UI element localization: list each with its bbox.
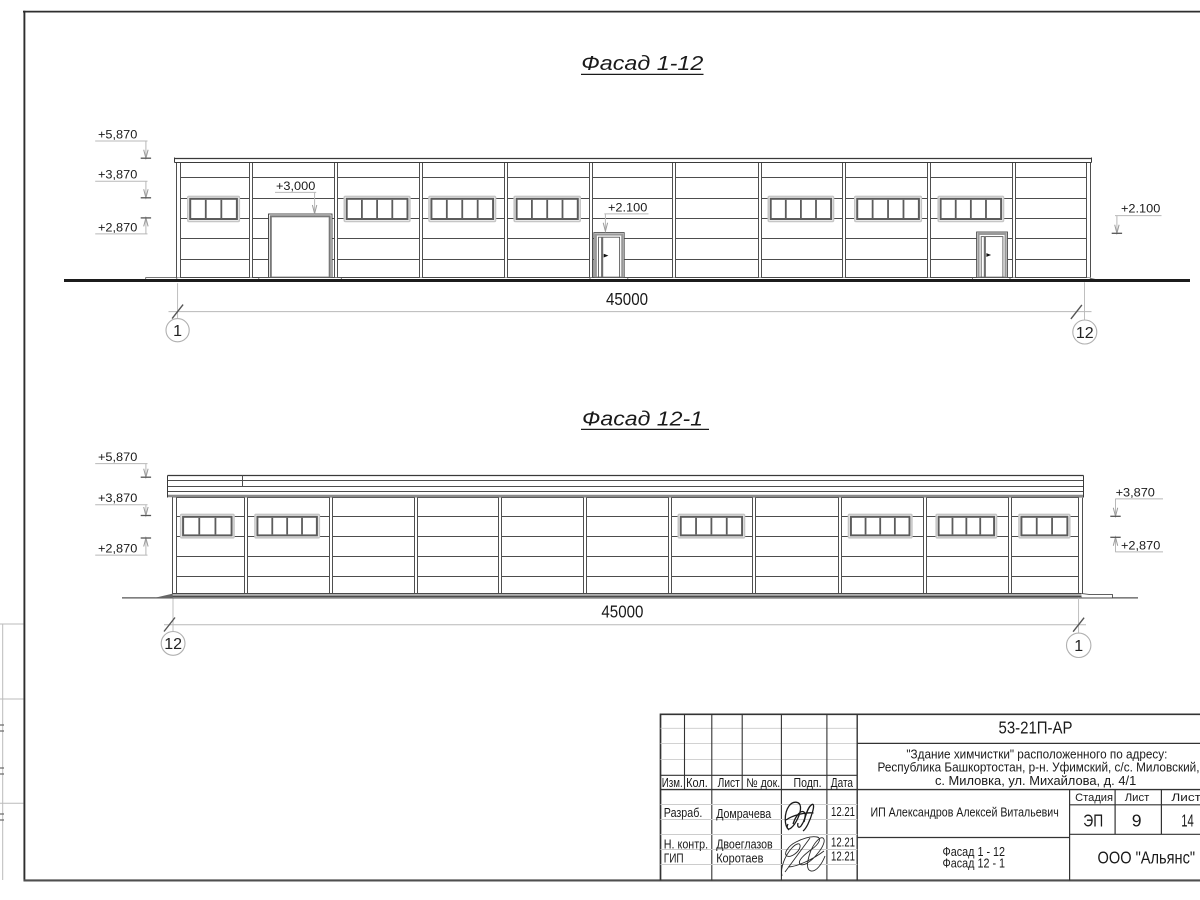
svg-text:№ док.: № док. (746, 776, 780, 790)
svg-text:ГИП: ГИП (664, 850, 684, 865)
svg-text:Стадия: Стадия (1075, 792, 1113, 804)
svg-text:9: 9 (1132, 811, 1142, 831)
svg-text:12.21: 12.21 (831, 848, 855, 863)
svg-text:+3,870: +3,870 (98, 491, 137, 505)
svg-text:12.21: 12.21 (831, 804, 855, 819)
svg-text:45000: 45000 (601, 602, 643, 622)
svg-text:+5,870: +5,870 (98, 450, 137, 464)
svg-text:Лист: Лист (1125, 792, 1150, 804)
svg-text:Листов: Листов (1171, 792, 1200, 804)
svg-text:ООО "Альянс": ООО "Альянс" (1098, 848, 1196, 868)
svg-text:Фасад 1-12: Фасад 1-12 (581, 52, 704, 75)
svg-text:12: 12 (164, 636, 182, 653)
svg-text:Подп.: Подп. (794, 776, 822, 790)
svg-text:45000: 45000 (606, 289, 648, 309)
svg-text:Дата: Дата (831, 776, 853, 790)
svg-text:+3,870: +3,870 (98, 168, 137, 182)
svg-text:ЭП: ЭП (1083, 811, 1103, 831)
svg-text:+2.100: +2.100 (1121, 202, 1160, 216)
svg-text:1: 1 (1074, 638, 1083, 655)
svg-text:Лист: Лист (718, 776, 740, 790)
svg-text:Домрачева: Домрачева (716, 806, 772, 821)
svg-text:Коротаев: Коротаев (716, 850, 763, 865)
svg-text:Двоеглазов: Двоеглазов (716, 837, 773, 852)
svg-text:12.21: 12.21 (831, 834, 855, 849)
svg-text:+3,000: +3,000 (276, 179, 315, 193)
svg-text:с. Миловка, ул. Михайлова, д.: с. Миловка, ул. Михайлова, д. 4/1 (935, 773, 1136, 788)
svg-text:+5,870: +5,870 (98, 128, 137, 142)
svg-text:+2,870: +2,870 (98, 220, 137, 234)
svg-text:Изм.: Изм. (662, 776, 683, 790)
svg-text:Фасад 12-1: Фасад 12-1 (582, 408, 703, 431)
svg-text:1: 1 (173, 323, 182, 340)
svg-text:+2,870: +2,870 (1121, 539, 1160, 553)
svg-text:14: 14 (1181, 811, 1194, 831)
svg-text:Фасад 12 - 1: Фасад 12 - 1 (943, 855, 1006, 870)
svg-text:Разраб.: Разраб. (664, 805, 703, 820)
svg-text:+2,870: +2,870 (98, 542, 137, 556)
svg-text:53-21П-АР: 53-21П-АР (999, 718, 1073, 738)
svg-text:Кол.: Кол. (686, 776, 708, 790)
svg-text:+3,870: +3,870 (1116, 485, 1155, 499)
svg-text:12: 12 (1076, 325, 1094, 342)
svg-text:+2.100: +2.100 (608, 200, 647, 214)
svg-text:Н. контр.: Н. контр. (664, 836, 708, 851)
svg-text:ИП Александров Алексей Виталье: ИП Александров Алексей Витальевич (870, 804, 1058, 819)
